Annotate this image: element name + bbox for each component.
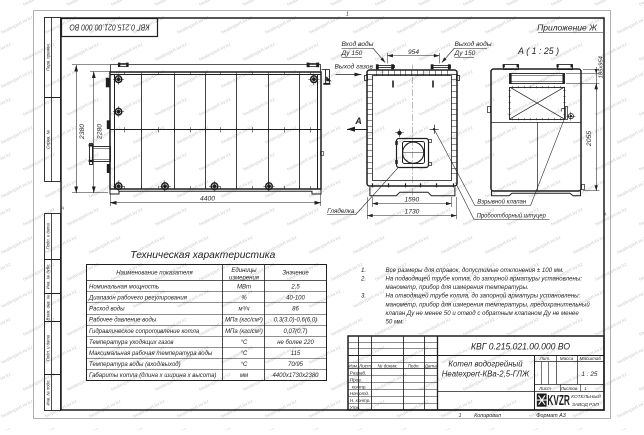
svg-text:Н. контр.: Н. контр. [350, 398, 371, 403]
svg-text:2.: 2. [360, 276, 366, 283]
svg-text:Рабочее давление воды: Рабочее давление воды [89, 318, 157, 324]
svg-text:Подп. и дата: Подп. и дата [45, 223, 50, 250]
svg-text:1: 1 [459, 413, 462, 419]
svg-text:№ докум.: № докум. [377, 363, 397, 368]
svg-text:Масса: Масса [560, 356, 574, 361]
svg-text:Вход воды: Вход воды [342, 40, 374, 48]
svg-text:мм: мм [240, 373, 248, 379]
svg-text:Ду 150: Ду 150 [341, 50, 363, 57]
svg-text:4400: 4400 [200, 195, 215, 202]
svg-text:Единицы: Единицы [231, 268, 257, 274]
svg-text:Габариты котла (длина х ширина: Габариты котла (длина х ширина х высота) [89, 373, 216, 379]
svg-text:1730: 1730 [405, 208, 420, 215]
svg-text:70/95: 70/95 [288, 362, 304, 368]
svg-text:1: 1 [584, 386, 587, 391]
svg-text:манометр, прибор для измерения: манометр, прибор для измерения температу… [386, 284, 529, 291]
svg-text:Инв. № дубл.: Инв. № дубл. [45, 263, 50, 289]
svg-text:185х954: 185х954 [599, 56, 605, 78]
svg-text:Взам. инв. №: Взам. инв. № [45, 294, 50, 320]
svg-text:А ( 1 : 25 ): А ( 1 : 25 ) [517, 46, 559, 56]
svg-text:ЗАВОД РЭП: ЗАВОД РЭП [572, 402, 599, 407]
svg-text:Взрывной клапан: Взрывной клапан [477, 198, 526, 206]
svg-text:МВт: МВт [237, 284, 251, 290]
svg-text:На подводящей трубе котла, до: На подводящей трубе котла, до запорной а… [386, 276, 583, 283]
svg-text:Котел водогрейный: Котел водогрейный [448, 360, 523, 369]
svg-text:МПа (кгс/см²): МПа (кгс/см²) [225, 318, 263, 324]
svg-text:Утв.: Утв. [350, 405, 360, 410]
svg-text:А: А [602, 212, 606, 217]
svg-text:Пров.: Пров. [350, 377, 362, 382]
svg-text:Лист: Лист [538, 386, 551, 391]
svg-text:Ду 150: Ду 150 [454, 50, 476, 57]
svg-text:Разраб.: Разраб. [350, 371, 367, 376]
svg-text:1590: 1590 [404, 196, 419, 203]
svg-text:А: А [60, 206, 64, 211]
svg-text:Формат А3: Формат А3 [536, 413, 566, 419]
svg-text:954: 954 [408, 49, 419, 56]
svg-text:манометр, прибор для измерения: манометр, прибор для измерения температу… [386, 301, 591, 308]
svg-text:Диапазон рабочего регулировани: Диапазон рабочего регулирования [88, 296, 188, 302]
svg-text:2380: 2380 [79, 124, 86, 140]
svg-text:м³/ч: м³/ч [239, 307, 250, 313]
svg-text:Справ. №: Справ. № [45, 130, 50, 149]
svg-text:Расход воды: Расход воды [89, 307, 125, 313]
svg-text:%: % [241, 296, 247, 302]
svg-text:Подп. и дата: Подп. и дата [45, 334, 50, 361]
svg-text:Выход воды: Выход воды [455, 40, 492, 48]
svg-text:Листов: Листов [560, 386, 578, 391]
svg-text:Выход газов: Выход газов [335, 63, 374, 71]
svg-text:МПа (кгс/см²): МПа (кгс/см²) [225, 329, 263, 335]
svg-text:Дата: Дата [424, 363, 438, 368]
svg-text:Нач.отд.: Нач.отд. [350, 391, 369, 396]
svg-text:На отводящей трубе котла, до з: На отводящей трубе котла, до запорной ар… [386, 293, 581, 300]
svg-text:Масштаб: Масштаб [580, 356, 602, 361]
svg-text:не более 220: не более 220 [277, 340, 314, 346]
svg-text:Heatexpert-КВа-2,5-ГЛЖ: Heatexpert-КВа-2,5-ГЛЖ [442, 370, 530, 379]
svg-text:1.: 1. [361, 267, 366, 274]
svg-text:Лист: Лист [358, 363, 371, 368]
svg-text:Изм.: Изм. [348, 363, 358, 368]
svg-text:Наименование показателя: Наименование показателя [116, 271, 193, 277]
svg-text:2,5: 2,5 [290, 284, 300, 290]
svg-text:Приложение Ж: Приложение Ж [537, 22, 598, 32]
svg-text:КОТЕЛЬНЫЙ: КОТЕЛЬНЫЙ [571, 392, 601, 399]
svg-text:А: А [354, 116, 361, 126]
svg-text:2055: 2055 [586, 131, 593, 147]
svg-text:Температура уходящих газов: Температура уходящих газов [89, 340, 174, 346]
svg-text:86: 86 [292, 307, 299, 313]
svg-text:Лит.: Лит. [539, 356, 551, 361]
svg-text:клапан Ду не менее 50 и отвод: клапан Ду не менее 50 и отвод с обратным… [386, 310, 580, 317]
svg-text:°С: °С [241, 340, 248, 346]
svg-text:Перв. примен.: Перв. примен. [45, 43, 50, 71]
svg-text:1 : 25: 1 : 25 [582, 371, 598, 378]
svg-text:0,07(0,7): 0,07(0,7) [283, 329, 307, 335]
svg-text:115: 115 [291, 351, 301, 357]
svg-text:40-100: 40-100 [286, 296, 305, 302]
svg-text:контр.: контр. [352, 384, 367, 389]
svg-text:Гляделка: Гляделка [327, 207, 355, 215]
svg-text:Подп.: Подп. [408, 363, 420, 368]
svg-text:3.: 3. [361, 293, 366, 300]
svg-text:измерения: измерения [229, 275, 260, 281]
svg-text:Пробоотборный штуцер: Пробоотборный штуцер [477, 212, 546, 220]
svg-text:Инв. № подл.: Инв. № подл. [45, 380, 50, 406]
svg-text:KVZR: KVZR [547, 392, 570, 409]
svg-text:Номинальная мощность: Номинальная мощность [89, 284, 159, 290]
svg-text:Температура воды (вход/выход): Температура воды (вход/выход) [89, 362, 181, 368]
svg-text:1: 1 [346, 11, 349, 17]
svg-text:°С: °С [241, 362, 248, 368]
svg-text:Значение: Значение [282, 271, 309, 277]
svg-text:КВГ 0.215.021.00.000 ВО: КВГ 0.215.021.00.000 ВО [69, 22, 150, 31]
svg-text:0,3(3,0)-0,6(6,0): 0,3(3,0)-0,6(6,0) [274, 318, 317, 324]
svg-text:Копировал: Копировал [474, 413, 501, 419]
svg-text:4400х1730х2380: 4400х1730х2380 [272, 373, 319, 379]
svg-text:Техническая характеристика: Техническая характеристика [130, 250, 275, 261]
svg-text:Гидравлическое сопротивление к: Гидравлическое сопротивление котла [89, 329, 200, 335]
svg-text:КВГ 0.215.021.00.000 ВО: КВГ 0.215.021.00.000 ВО [471, 342, 570, 352]
svg-text:Максимальная рабочая температу: Максимальная рабочая температура воды [89, 351, 213, 357]
svg-text:50 мм.: 50 мм. [386, 319, 405, 326]
svg-text:2280: 2280 [97, 124, 104, 140]
svg-text:Все размеры для справок, допус: Все размеры для справок, допустимые откл… [386, 267, 564, 274]
svg-text:°С: °С [241, 351, 248, 357]
